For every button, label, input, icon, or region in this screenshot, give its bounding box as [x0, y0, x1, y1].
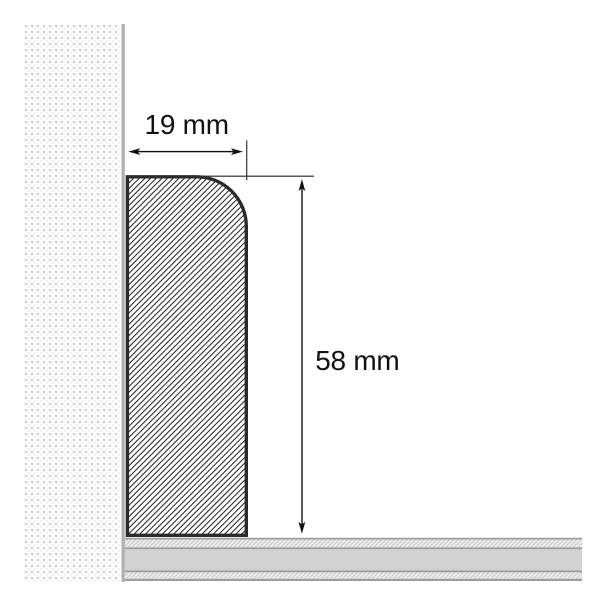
svg-text:19 mm: 19 mm — [145, 109, 229, 140]
svg-text:58 mm: 58 mm — [315, 345, 399, 376]
